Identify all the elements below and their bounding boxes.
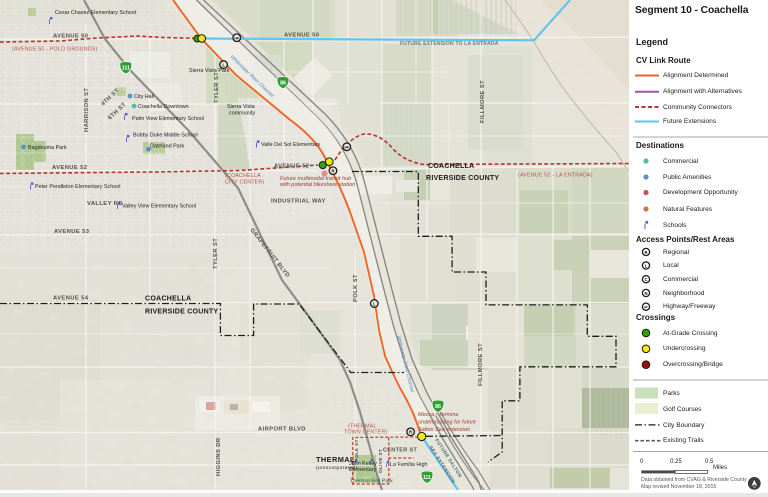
svg-text:Coachella Downtown: Coachella Downtown: [138, 104, 189, 110]
svg-text:COACHELLA: COACHELLA: [428, 162, 474, 170]
svg-text:FILLMORE ST: FILLMORE ST: [478, 343, 484, 386]
svg-text:Valley View Elementary School: Valley View Elementary School: [122, 204, 196, 210]
svg-text:La Familia High: La Familia High: [390, 462, 427, 468]
svg-text:AVENUE 50: AVENUE 50: [53, 34, 88, 40]
svg-text:CITY CENTER): CITY CENTER): [225, 180, 264, 186]
svg-text:L: L: [645, 263, 648, 268]
svg-text:(COACHELLA: (COACHELLA: [225, 173, 261, 179]
svg-text:INDUSTRIAL WAY: INDUSTRIAL WAY: [271, 199, 326, 205]
svg-text:86: 86: [435, 404, 441, 410]
svg-text:R: R: [409, 430, 412, 435]
svg-text:AVENUE 52: AVENUE 52: [274, 164, 309, 170]
svg-text:R: R: [331, 169, 334, 174]
svg-text:AVENUE 52: AVENUE 52: [52, 165, 87, 171]
svg-text:R: R: [644, 250, 647, 255]
svg-text:(AVENUE 50 - POLO GROUNDS): (AVENUE 50 - POLO GROUNDS): [12, 47, 97, 53]
svg-text:TYLER ST: TYLER ST: [214, 72, 220, 103]
svg-text:Cesar Chavez Elementary School: Cesar Chavez Elementary School: [55, 10, 136, 16]
svg-text:Bobby Duke Middle School: Bobby Duke Middle School: [133, 133, 198, 139]
svg-text:Salton Sea extension: Salton Sea extension: [418, 427, 470, 433]
svg-text:FILLMORE ST: FILLMORE ST: [480, 80, 486, 123]
svg-text:AVENUE 50: AVENUE 50: [284, 33, 319, 39]
svg-text:Palm View Elementary School: Palm View Elementary School: [132, 116, 204, 122]
svg-text:(AVENUE 52 - LA ENTRADA): (AVENUE 52 - LA ENTRADA): [518, 173, 593, 179]
svg-text:TYLER ST: TYLER ST: [213, 238, 219, 269]
svg-text:AVENUE 54: AVENUE 54: [53, 296, 89, 302]
svg-text:OLIVE ST: OLIVE ST: [378, 449, 383, 473]
svg-text:L: L: [222, 62, 225, 67]
svg-text:Valle Del Sol Elementary: Valle Del Sol Elementary: [261, 142, 321, 148]
svg-text:CENTER ST: CENTER ST: [383, 448, 417, 454]
svg-text:Peter Pendleton Elementary Sch: Peter Pendleton Elementary School: [35, 184, 120, 190]
svg-text:FUTURE EXTENSION TO LA ENTRADA: FUTURE EXTENSION TO LA ENTRADA: [400, 41, 499, 47]
svg-text:L: L: [373, 301, 376, 306]
svg-text:City Hall: City Hall: [134, 94, 154, 100]
svg-text:with potential bikeshare stati: with potential bikeshare station: [280, 182, 355, 188]
svg-text:AIRPORT BLVD: AIRPORT BLVD: [258, 427, 306, 433]
svg-text:HF: HF: [644, 305, 648, 309]
svg-text:HARRISON ST: HARRISON ST: [84, 88, 90, 132]
svg-text:N: N: [644, 291, 647, 296]
svg-text:COACHELLA: COACHELLA: [145, 295, 191, 303]
svg-text:undercrossing for future: undercrossing for future: [418, 420, 476, 426]
svg-text:(unincorporated): (unincorporated): [316, 465, 358, 471]
svg-text:THERMAL: THERMAL: [316, 455, 355, 464]
svg-text:Dateland Park: Dateland Park: [150, 144, 184, 150]
svg-text:111: 111: [423, 475, 431, 481]
svg-text:86: 86: [280, 81, 286, 87]
svg-text:C: C: [644, 277, 647, 282]
svg-text:AVENUE 53: AVENUE 53: [54, 229, 90, 235]
svg-text:Thermal Ball Park: Thermal Ball Park: [350, 479, 393, 485]
svg-text:POLK ST: POLK ST: [353, 274, 359, 302]
svg-text:TOWN CENTER): TOWN CENTER): [344, 430, 388, 436]
svg-text:HF: HF: [234, 36, 239, 40]
svg-text:Bagdouma Park: Bagdouma Park: [28, 145, 67, 151]
svg-text:Mecca / Termina: Mecca / Termina: [418, 412, 458, 418]
svg-text:111: 111: [122, 66, 130, 72]
svg-text:Sierra Vista: Sierra Vista: [227, 104, 255, 110]
svg-text:community: community: [229, 111, 255, 117]
svg-text:RIVERSIDE COUNTY: RIVERSIDE COUNTY: [145, 308, 218, 316]
svg-text:HF: HF: [345, 145, 350, 149]
svg-text:HIGGINS DR: HIGGINS DR: [216, 437, 222, 476]
svg-text:RIVERSIDE COUNTY: RIVERSIDE COUNTY: [426, 174, 499, 182]
